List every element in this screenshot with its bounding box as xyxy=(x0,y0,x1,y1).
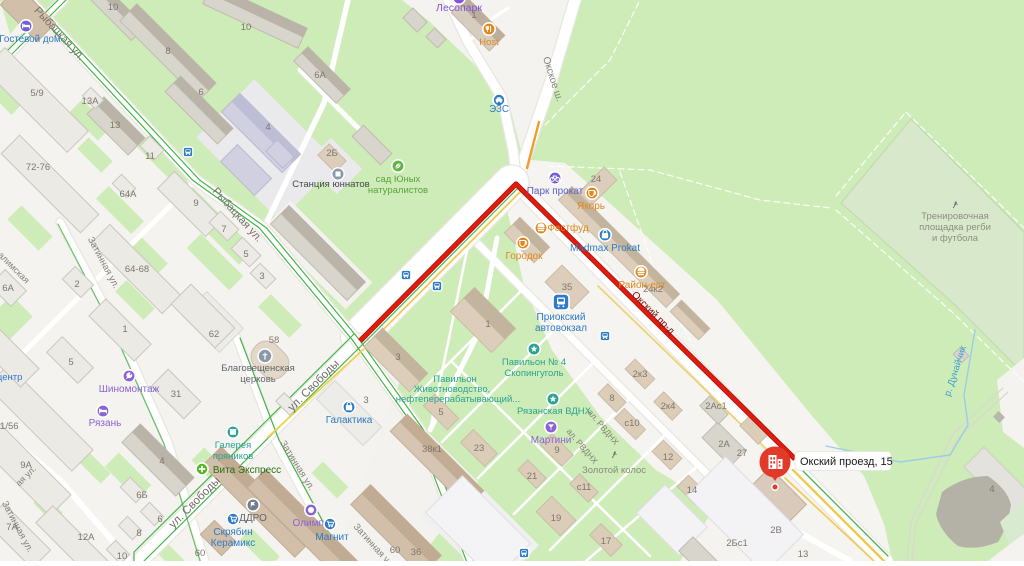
svg-text:Галерея: Галерея xyxy=(215,440,251,451)
svg-text:..центр: ..центр xyxy=(0,372,22,383)
svg-text:Галактика: Галактика xyxy=(326,415,373,426)
svg-text:Madmax Prokat: Madmax Prokat xyxy=(570,243,640,254)
svg-text:нефтеперерабатывающий...: нефтеперерабатывающий... xyxy=(396,394,520,405)
svg-text:6: 6 xyxy=(157,514,162,525)
svg-text:3: 3 xyxy=(259,271,264,282)
svg-text:6: 6 xyxy=(198,87,203,98)
svg-text:3: 3 xyxy=(363,395,368,406)
svg-text:Парк прокат: Парк прокат xyxy=(527,186,584,197)
svg-text:Шиномонтаж: Шиномонтаж xyxy=(99,384,160,395)
svg-text:72-76: 72-76 xyxy=(26,162,50,173)
svg-text:19: 19 xyxy=(551,513,562,524)
svg-text:и футбола: и футбола xyxy=(932,233,979,244)
svg-text:5: 5 xyxy=(438,407,443,418)
svg-text:Окский проезд, 15: Окский проезд, 15 xyxy=(800,456,893,468)
svg-text:Вита Экспресс: Вита Экспресс xyxy=(213,465,281,476)
svg-text:27: 27 xyxy=(737,448,748,459)
svg-text:2: 2 xyxy=(74,279,79,290)
svg-text:12: 12 xyxy=(663,452,674,463)
svg-text:23: 23 xyxy=(474,443,485,454)
svg-text:5: 5 xyxy=(243,249,248,260)
svg-text:Приокский: Приокский xyxy=(537,312,586,323)
svg-text:2к4: 2к4 xyxy=(661,401,676,412)
svg-text:6Б: 6Б xyxy=(136,490,148,501)
svg-text:Гостевой дом: Гостевой дом xyxy=(0,34,61,45)
svg-text:9: 9 xyxy=(554,445,559,456)
svg-text:Рязанская ВДНХ: Рязанская ВДНХ xyxy=(517,406,592,417)
svg-text:6А: 6А xyxy=(314,70,326,81)
svg-text:4: 4 xyxy=(989,484,994,495)
svg-text:11/56: 11/56 xyxy=(0,421,19,432)
svg-text:7А: 7А xyxy=(6,522,18,533)
svg-text:60: 60 xyxy=(195,548,206,559)
svg-text:8: 8 xyxy=(136,528,141,539)
svg-text:10: 10 xyxy=(241,22,252,33)
svg-text:Скрябин: Скрябин xyxy=(213,526,252,538)
svg-text:2В: 2В xyxy=(770,525,782,536)
svg-text:36: 36 xyxy=(411,547,422,558)
svg-text:5/9: 5/9 xyxy=(30,88,43,99)
svg-text:с10: с10 xyxy=(624,418,639,429)
svg-text:58: 58 xyxy=(269,335,280,346)
svg-text:8: 8 xyxy=(165,46,170,57)
svg-text:Мартини: Мартини xyxy=(531,435,572,446)
svg-text:13А: 13А xyxy=(82,96,100,107)
svg-text:35: 35 xyxy=(562,282,573,293)
svg-text:площадка регби: площадка регби xyxy=(919,222,991,233)
svg-text:Станция юннатов: Станция юннатов xyxy=(292,179,369,190)
svg-text:Район-ест: Район-ест xyxy=(618,280,665,291)
svg-text:Лесопарк: Лесопарк xyxy=(436,2,482,14)
svg-text:12А: 12А xyxy=(78,532,96,543)
svg-text:с11: с11 xyxy=(577,482,592,493)
svg-text:Host: Host xyxy=(479,37,499,48)
svg-text:2Б: 2Б xyxy=(326,148,338,159)
svg-text:Рязань: Рязань xyxy=(89,418,122,429)
svg-text:ЭЗС: ЭЗС xyxy=(489,104,509,115)
svg-text:9: 9 xyxy=(193,198,198,209)
svg-text:Золотой колос: Золотой колос xyxy=(582,465,646,476)
svg-text:сад Юных: сад Юных xyxy=(376,174,421,185)
svg-text:2Ас1: 2Ас1 xyxy=(705,401,727,412)
svg-text:Тренировочная: Тренировочная xyxy=(921,211,989,222)
svg-text:13: 13 xyxy=(110,120,121,131)
svg-text:Благовещенская: Благовещенская xyxy=(221,363,295,374)
svg-text:24: 24 xyxy=(591,174,602,185)
svg-text:Городок: Городок xyxy=(506,251,544,262)
svg-text:4: 4 xyxy=(265,122,270,133)
svg-text:31: 31 xyxy=(171,389,182,400)
svg-text:5: 5 xyxy=(68,357,73,368)
svg-text:пряников: пряников xyxy=(213,451,254,462)
svg-text:1: 1 xyxy=(485,319,490,330)
svg-text:автовокзал: автовокзал xyxy=(535,323,587,334)
svg-text:8: 8 xyxy=(609,393,614,404)
svg-text:2Бс1: 2Бс1 xyxy=(726,538,748,549)
svg-text:64А: 64А xyxy=(120,189,138,200)
svg-text:Павильон № 4: Павильон № 4 xyxy=(502,357,566,368)
svg-text:10: 10 xyxy=(117,551,128,561)
svg-text:4: 4 xyxy=(159,456,164,467)
svg-text:3: 3 xyxy=(395,352,400,363)
svg-text:ДДРО: ДДРО xyxy=(239,513,267,524)
svg-text:Магнит: Магнит xyxy=(315,532,349,543)
svg-text:60: 60 xyxy=(390,545,401,556)
svg-text:64-68: 64-68 xyxy=(125,264,149,275)
svg-text:14: 14 xyxy=(687,485,698,496)
svg-text:2А: 2А xyxy=(718,439,730,450)
svg-text:натуралистов: натуралистов xyxy=(368,185,428,196)
svg-text:11: 11 xyxy=(145,151,155,162)
svg-text:7: 7 xyxy=(221,224,226,235)
svg-text:Якорь: Якорь xyxy=(577,201,605,212)
svg-text:17: 17 xyxy=(601,536,612,547)
svg-text:62: 62 xyxy=(209,329,220,340)
svg-text:2к3: 2к3 xyxy=(633,369,648,380)
svg-text:38к1: 38к1 xyxy=(422,444,442,455)
svg-text:10: 10 xyxy=(108,2,119,13)
svg-text:13: 13 xyxy=(798,549,809,560)
svg-text:Керамикс: Керамикс xyxy=(211,538,255,549)
svg-text:церковь: церковь xyxy=(240,374,275,385)
svg-text:Фастфуд: Фастфуд xyxy=(547,222,589,234)
svg-text:21: 21 xyxy=(527,471,538,482)
svg-text:6А: 6А xyxy=(2,283,14,294)
svg-text:9А: 9А xyxy=(20,460,32,471)
svg-text:1: 1 xyxy=(122,324,127,335)
svg-text:Скопингуголь: Скопингуголь xyxy=(504,368,563,379)
